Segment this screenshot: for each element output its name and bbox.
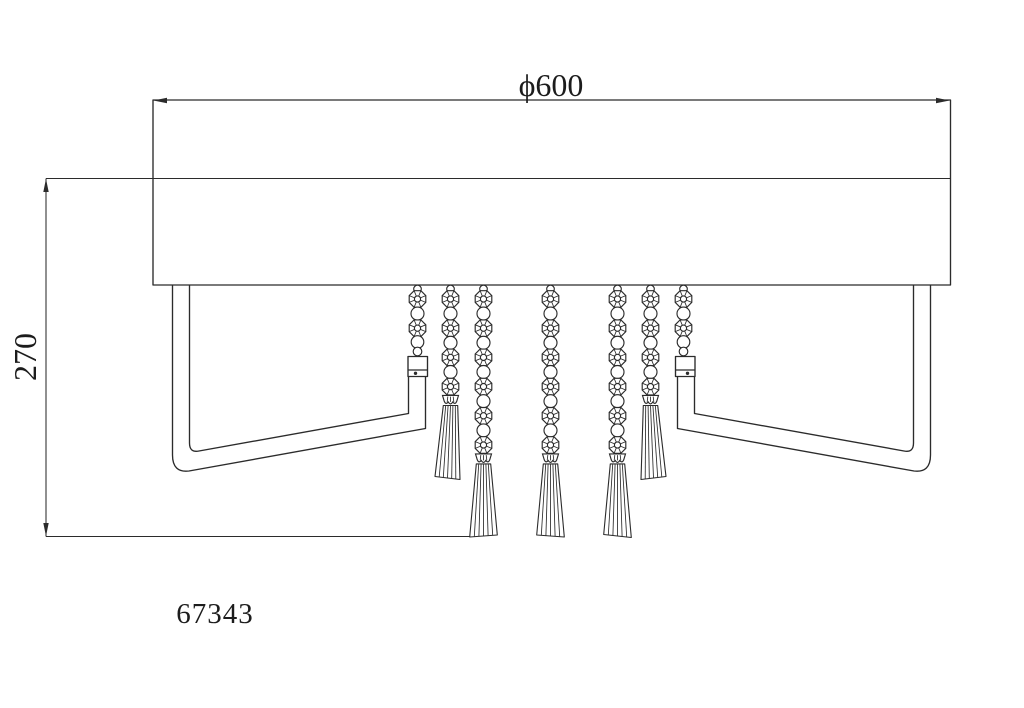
model-number-label: 67343 bbox=[176, 598, 254, 630]
round-bead bbox=[544, 395, 557, 408]
bead-center bbox=[614, 442, 620, 448]
arrow-left-icon bbox=[154, 98, 168, 104]
bead-center bbox=[480, 296, 486, 302]
round-bead bbox=[477, 366, 490, 379]
diameter-dimension-label: ϕ600 bbox=[519, 67, 584, 103]
bead-center bbox=[680, 296, 686, 302]
bead-center bbox=[480, 325, 486, 331]
bead-center bbox=[447, 354, 453, 360]
round-bead bbox=[411, 336, 424, 349]
arrow-right-icon bbox=[936, 98, 950, 104]
bead-strands bbox=[409, 285, 692, 537]
bead-center bbox=[614, 296, 620, 302]
round-bead bbox=[444, 307, 457, 320]
bead-chain-right-arm bbox=[675, 285, 692, 356]
bead-chain-tassel-1 bbox=[435, 285, 460, 479]
right-socket-pin-dot bbox=[686, 372, 689, 375]
bead-center bbox=[547, 296, 553, 302]
bead-center bbox=[614, 325, 620, 331]
bead-center bbox=[414, 296, 420, 302]
left-frame-outer-tube bbox=[173, 285, 426, 471]
arrow-down-icon bbox=[43, 523, 48, 536]
bead-center bbox=[480, 442, 486, 448]
round-bead bbox=[477, 424, 490, 437]
round-bead bbox=[413, 347, 422, 356]
bead-center bbox=[647, 296, 653, 302]
round-bead bbox=[444, 366, 457, 379]
right-frame-arm bbox=[676, 285, 931, 471]
right-frame-inner-tube bbox=[695, 285, 914, 451]
bead-center bbox=[480, 354, 486, 360]
round-bead bbox=[411, 307, 424, 320]
right-socket bbox=[676, 357, 696, 377]
bead-center bbox=[447, 384, 453, 390]
lamp-body bbox=[46, 100, 951, 285]
bead-center bbox=[414, 325, 420, 331]
height-dimension-label: 270 bbox=[7, 333, 43, 381]
round-bead bbox=[677, 336, 690, 349]
bead-center bbox=[547, 325, 553, 331]
bead-center bbox=[547, 384, 553, 390]
round-bead bbox=[611, 336, 624, 349]
arrow-up-icon bbox=[43, 179, 48, 192]
lamp-body-outline bbox=[153, 100, 951, 285]
round-bead bbox=[679, 347, 688, 356]
bead-center bbox=[614, 413, 620, 419]
round-bead bbox=[611, 366, 624, 379]
round-bead bbox=[677, 307, 690, 320]
bead-chain-tassel-3 bbox=[537, 285, 565, 537]
round-bead bbox=[544, 336, 557, 349]
chandelier-technical-drawing: ϕ600 270 67343 bbox=[0, 0, 1024, 708]
round-bead bbox=[544, 366, 557, 379]
left-frame-arm bbox=[173, 285, 428, 471]
diameter-dimension: ϕ600 bbox=[154, 67, 950, 103]
round-bead bbox=[644, 336, 657, 349]
round-bead bbox=[644, 366, 657, 379]
bead-center bbox=[680, 325, 686, 331]
bead-chain-tassel-5 bbox=[641, 285, 666, 479]
round-bead bbox=[611, 424, 624, 437]
bead-center bbox=[480, 384, 486, 390]
bead-chain-tassel-4 bbox=[604, 285, 632, 537]
round-bead bbox=[544, 307, 557, 320]
bead-chain-tassel-2 bbox=[470, 285, 498, 537]
bead-chain-left-arm bbox=[409, 285, 426, 356]
bead-center bbox=[547, 442, 553, 448]
round-bead bbox=[444, 336, 457, 349]
bead-center bbox=[447, 325, 453, 331]
round-bead bbox=[644, 307, 657, 320]
round-bead bbox=[477, 307, 490, 320]
left-socket-pin-dot bbox=[414, 372, 417, 375]
bead-center bbox=[547, 413, 553, 419]
bead-center bbox=[647, 384, 653, 390]
left-socket bbox=[408, 357, 428, 377]
round-bead bbox=[611, 395, 624, 408]
bead-center bbox=[547, 354, 553, 360]
round-bead bbox=[544, 424, 557, 437]
left-frame-inner-tube bbox=[190, 285, 409, 451]
bead-center bbox=[614, 354, 620, 360]
bead-center bbox=[480, 413, 486, 419]
round-bead bbox=[477, 395, 490, 408]
right-frame-outer-tube bbox=[678, 285, 931, 471]
drawing-canvas: ϕ600 270 67343 bbox=[0, 0, 1024, 708]
round-bead bbox=[477, 336, 490, 349]
height-dimension: 270 bbox=[7, 179, 470, 537]
round-bead bbox=[611, 307, 624, 320]
bead-center bbox=[647, 354, 653, 360]
bead-center bbox=[447, 296, 453, 302]
bead-center bbox=[647, 325, 653, 331]
bead-center bbox=[614, 384, 620, 390]
